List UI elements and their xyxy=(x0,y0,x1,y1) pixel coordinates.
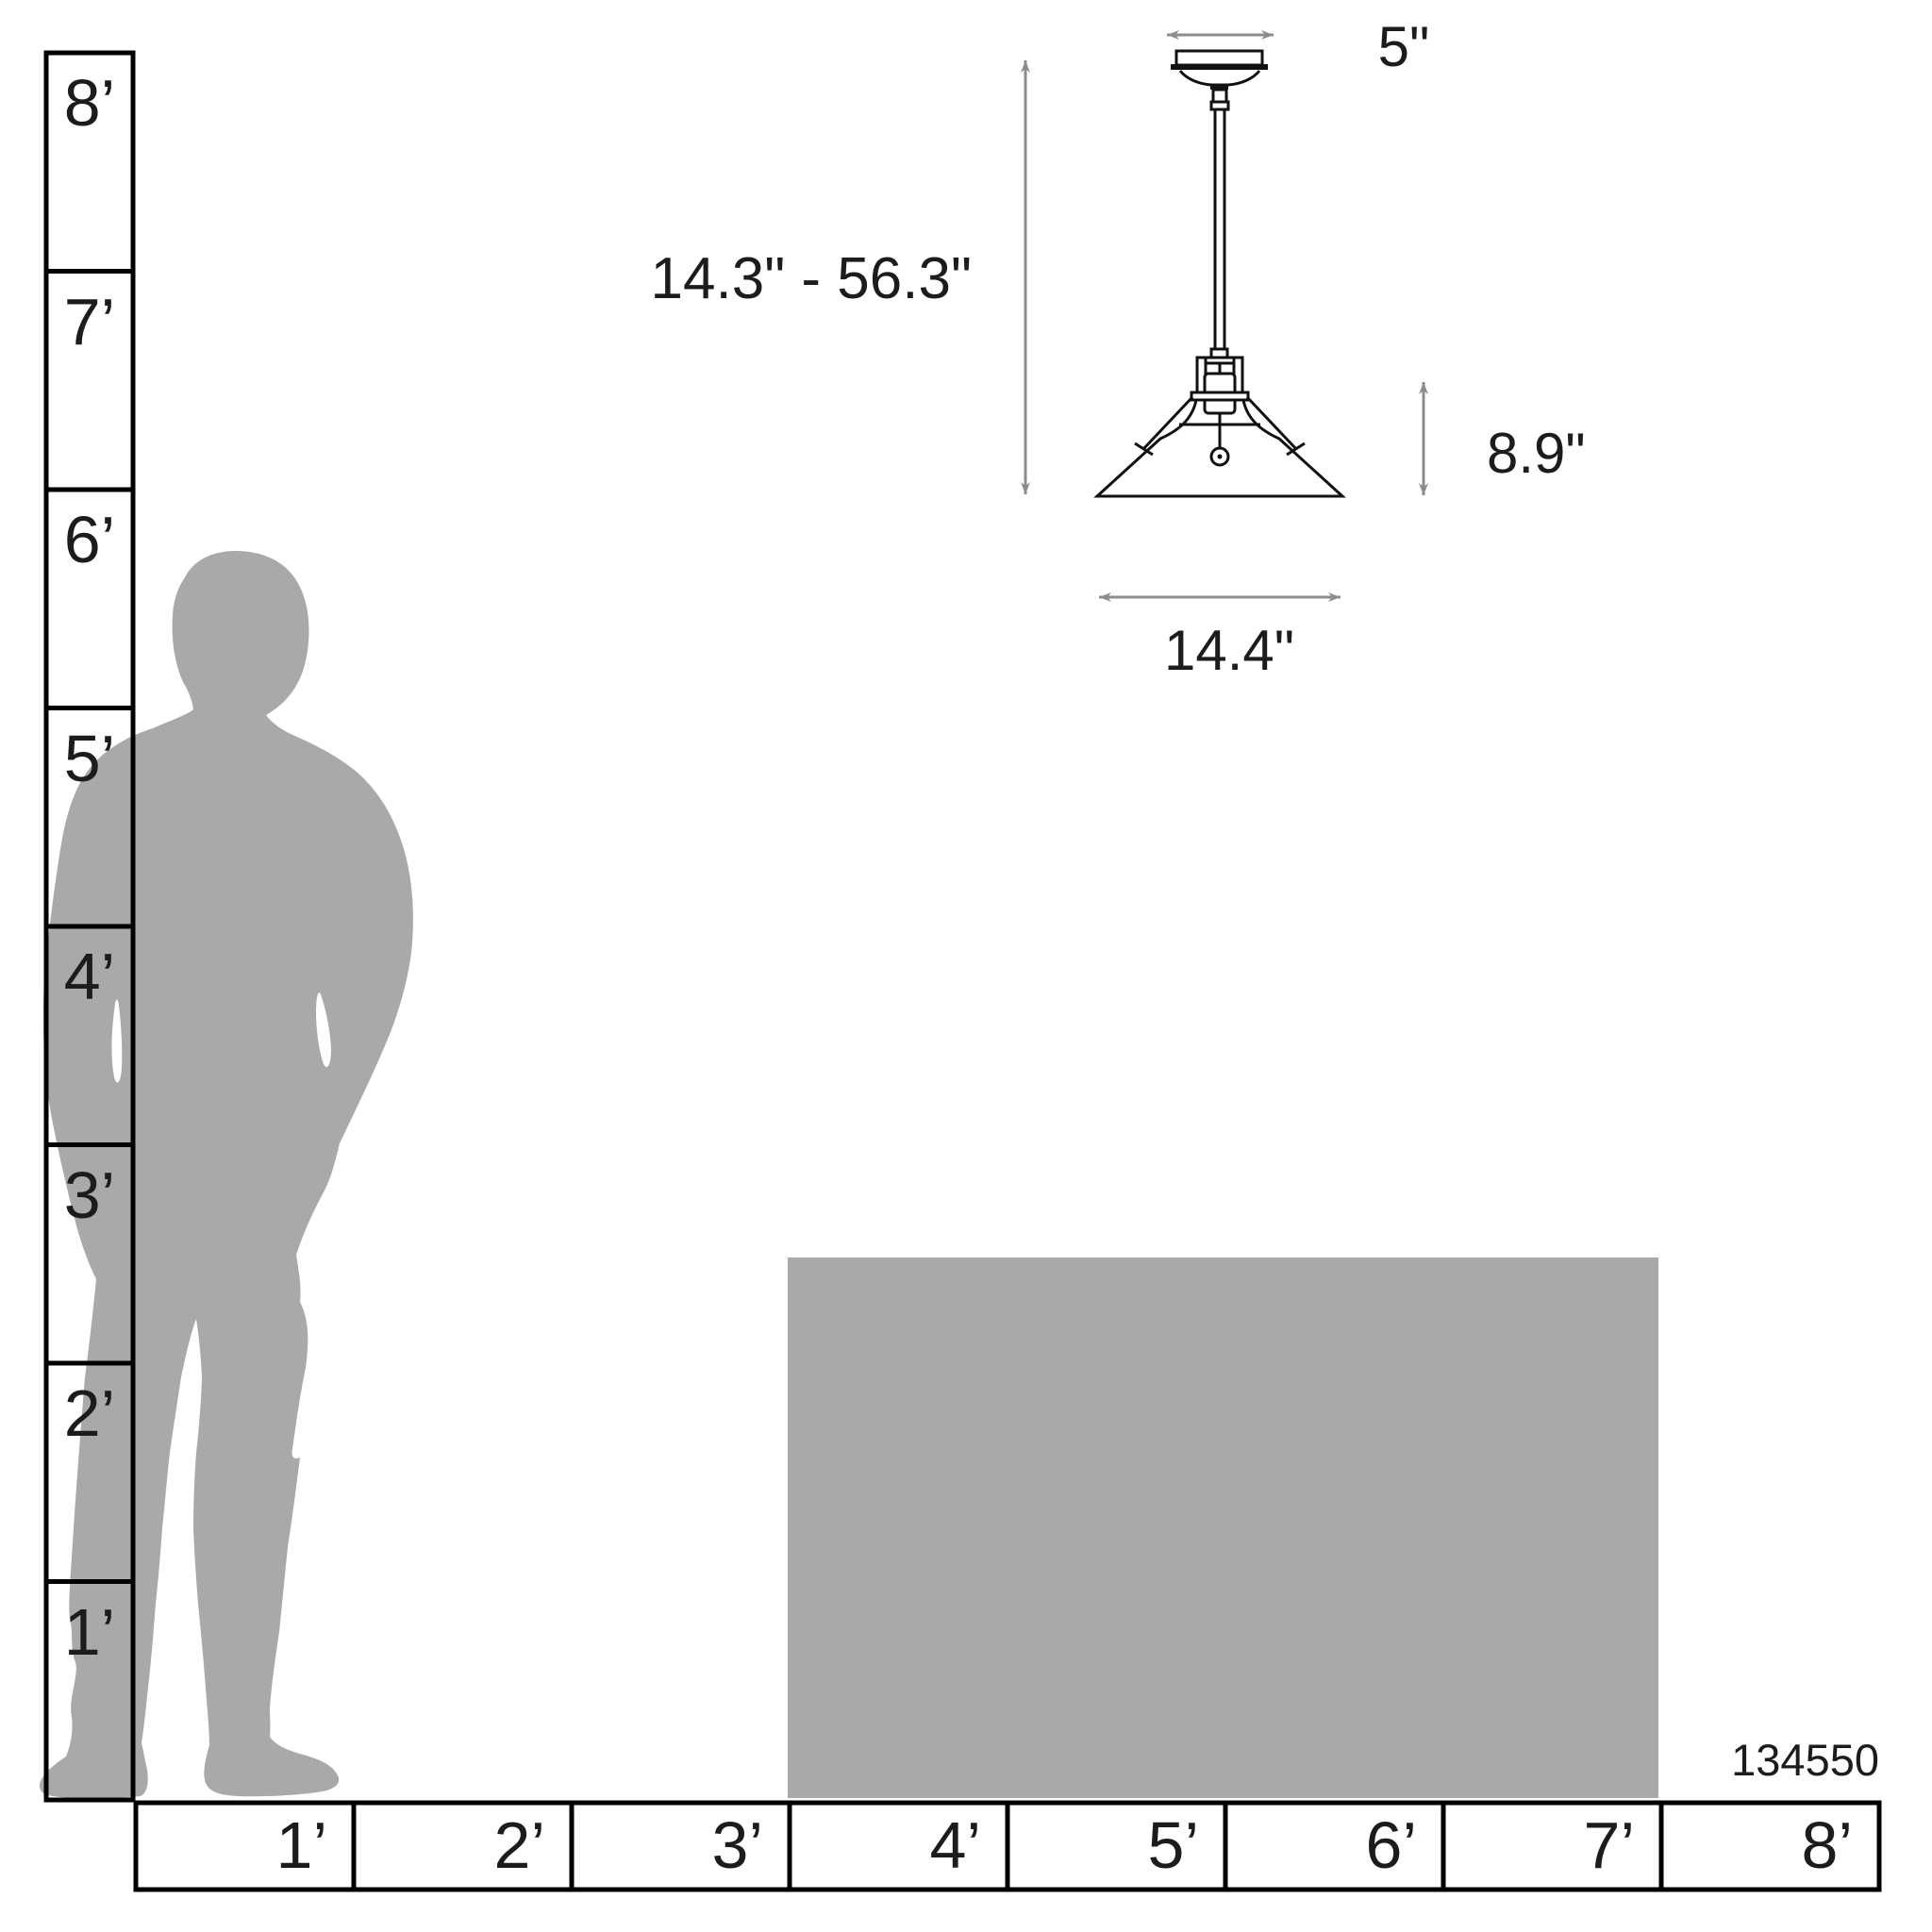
canopy-width-label: 5" xyxy=(1352,19,1456,75)
product-code: 134550 xyxy=(1596,1738,1879,1782)
vertical-ruler-label: 8’ xyxy=(46,70,133,136)
shade-height-label: 8.9" xyxy=(1487,425,1675,482)
vertical-ruler-label: 5’ xyxy=(46,725,133,791)
vertical-ruler-label: 4’ xyxy=(46,943,133,1009)
canopy-plate xyxy=(1176,51,1262,65)
stem-upper xyxy=(1213,90,1226,102)
horizontal-ruler-label: 4’ xyxy=(790,1803,1008,1890)
finial-hole xyxy=(1218,455,1223,459)
vertical-ruler-label: 7’ xyxy=(46,289,133,355)
horizontal-ruler-label: 6’ xyxy=(1225,1803,1443,1890)
hang-rod xyxy=(1215,109,1224,349)
horizontal-ruler-label: 1’ xyxy=(136,1803,354,1890)
vertical-ruler-label: 3’ xyxy=(46,1162,133,1228)
vertical-ruler-label: 1’ xyxy=(46,1599,133,1665)
horizontal-ruler-label: 2’ xyxy=(354,1803,572,1890)
vertical-ruler-label: 2’ xyxy=(46,1380,133,1446)
clamp-band xyxy=(1191,392,1248,400)
table-scale-block xyxy=(788,1257,1658,1798)
pendant-light-drawing xyxy=(1097,51,1342,496)
hanging-height-label: 14.3" - 56.3" xyxy=(594,250,972,308)
shade-width-label: 14.4" xyxy=(1132,623,1326,679)
canopy-flange xyxy=(1171,64,1268,70)
horizontal-ruler-label: 7’ xyxy=(1443,1803,1661,1890)
horizontal-ruler-label: 3’ xyxy=(572,1803,790,1890)
horizontal-ruler-label: 8’ xyxy=(1661,1803,1879,1890)
canopy-dome xyxy=(1180,71,1259,85)
horizontal-ruler-label: 5’ xyxy=(1008,1803,1225,1890)
vertical-ruler-label: 6’ xyxy=(46,507,133,573)
